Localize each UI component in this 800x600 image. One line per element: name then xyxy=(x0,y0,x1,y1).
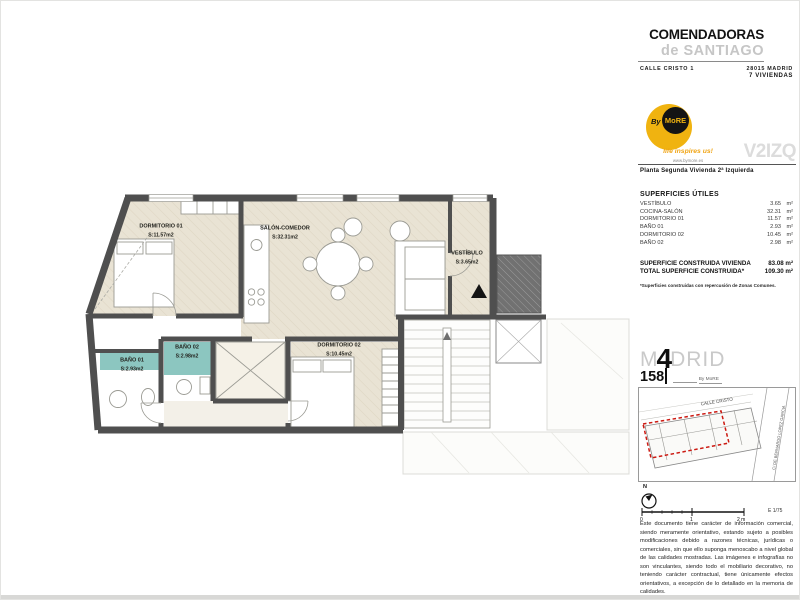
brand-tagline: life inspires us! xyxy=(638,148,738,155)
elevator xyxy=(496,320,541,363)
unit-code: V2IZQ xyxy=(744,141,796,163)
legal-disclaimer: Este documento tiene carácter de informa… xyxy=(640,520,793,597)
room-name: DORMITORIO 02 xyxy=(317,342,360,351)
room-name: DORMITORIO 01 xyxy=(139,223,182,232)
brand-by: By xyxy=(651,117,661,126)
madrid-drid: DRID xyxy=(670,349,725,370)
room-area: S:11.57m2 xyxy=(139,231,182,239)
room-area: S:2.93m2 xyxy=(120,365,144,373)
room-name: BAÑO 02 xyxy=(175,344,199,353)
table-row: BAÑO 02 2.98m² xyxy=(640,240,793,248)
room-label-dormitorio-02: DORMITORIO 02 S:10.45m2 xyxy=(317,342,360,359)
row-unit: m² xyxy=(781,232,793,240)
location-map: CALLE CRISTO C/ DE BERNARDO LOPEZ GARCIA xyxy=(638,387,796,482)
floor-plan-drawing xyxy=(1,1,638,600)
madrid158-logo: M 4 DRID 158 By MoRE xyxy=(640,342,725,384)
room-label-vestibulo: VESTÍBULO S:3.65m2 xyxy=(451,250,482,267)
room-label-bano-01: BAÑO 01 S:2.93m2 xyxy=(120,357,144,374)
row-unit: m² xyxy=(781,209,793,217)
table-row: COCINA-SALÓN 32.31m² xyxy=(640,209,793,217)
room-name: SALÓN-COMEDOR xyxy=(260,225,310,234)
built-label: TOTAL SUPERFICIE CONSTRUIDA* xyxy=(640,268,744,276)
project-subtitle: de SANTIAGO xyxy=(638,43,796,59)
madrid-four: 4 xyxy=(657,345,673,373)
table-row: DORMITORIO 02 10.45m² xyxy=(640,232,793,240)
built-row: SUPERFICIE CONSTRUIDA VIVIENDA 83.08 m² xyxy=(640,260,793,268)
room-label-salon-comedor: SALÓN-COMEDOR S:32.31m2 xyxy=(260,225,310,242)
floor-corridor xyxy=(164,401,288,427)
row-value: 32.31 xyxy=(757,209,781,217)
row-unit: m² xyxy=(781,240,793,248)
table-row: BAÑO 01 2.93m² xyxy=(640,224,793,232)
row-unit: m² xyxy=(781,201,793,209)
table-row: VESTÍBULO 3.65m² xyxy=(640,201,793,209)
row-label: COCINA-SALÓN xyxy=(640,209,683,217)
units-count: 7 VIVIENDAS xyxy=(638,73,796,79)
project-postal-city: 28015 MADRID xyxy=(747,66,793,72)
row-value: 2.93 xyxy=(757,224,781,232)
surfaces-table: SUPERFICIES ÚTILES VESTÍBULO 3.65m² COCI… xyxy=(640,191,793,247)
row-label: BAÑO 01 xyxy=(640,224,664,232)
table-row: DORMITORIO 01 11.57m² xyxy=(640,216,793,224)
built-value: 83.08 m² xyxy=(768,260,793,268)
row-unit: m² xyxy=(781,224,793,232)
divider-rule xyxy=(638,164,796,165)
project-header: COMENDADORAS de SANTIAGO CALLE CRISTO 1 … xyxy=(638,27,796,79)
street-label-right: C/ DE BERNARDO LOPEZ GARCIA xyxy=(771,405,786,470)
room-label-bano-02: BAÑO 02 S:2.98m2 xyxy=(175,344,199,361)
row-unit: m² xyxy=(781,216,793,224)
floor-plan: DORMITORIO 01 S:11.57m2 SALÓN-COMEDOR S:… xyxy=(1,1,638,600)
built-footnote: *Superficies construidas con repercusión… xyxy=(640,283,793,288)
room-area: S:32.31m2 xyxy=(260,233,310,241)
room-area: S:10.45m2 xyxy=(317,350,360,358)
brand-website: www.bymore.es xyxy=(638,158,738,163)
project-address-row: CALLE CRISTO 1 28015 MADRID xyxy=(638,62,796,72)
built-surface-block: SUPERFICIE CONSTRUIDA VIVIENDA 83.08 m² … xyxy=(640,260,793,288)
shaft xyxy=(497,255,541,313)
row-value: 11.57 xyxy=(757,216,781,224)
stairs xyxy=(404,320,490,428)
surfaces-title: SUPERFICIES ÚTILES xyxy=(640,191,793,198)
project-address: CALLE CRISTO 1 xyxy=(640,66,694,72)
row-label: DORMITORIO 01 xyxy=(640,216,684,224)
brand-logo: MoRE By xyxy=(646,104,692,150)
room-name: BAÑO 01 xyxy=(120,357,144,366)
row-label: BAÑO 02 xyxy=(640,240,664,248)
location-map-drawing: CALLE CRISTO C/ DE BERNARDO LOPEZ GARCIA xyxy=(639,388,795,481)
street-label-top: CALLE CRISTO xyxy=(700,396,733,406)
madrid-signature-line xyxy=(673,382,697,383)
scale-ratio: E 1/75 xyxy=(768,508,782,514)
info-sidebar: COMENDADORAS de SANTIAGO CALLE CRISTO 1 … xyxy=(638,1,796,600)
brand-logo-inner-circle: MoRE xyxy=(662,107,689,134)
row-value: 2.98 xyxy=(757,240,781,248)
built-label: SUPERFICIE CONSTRUIDA VIVIENDA xyxy=(640,260,751,268)
row-label: VESTÍBULO xyxy=(640,201,671,209)
row-value: 3.65 xyxy=(757,201,781,209)
room-name: VESTÍBULO xyxy=(451,250,482,259)
built-value: 109.30 m² xyxy=(765,268,793,276)
row-label: DORMITORIO 02 xyxy=(640,232,684,240)
room-area: S:3.65m2 xyxy=(451,258,482,266)
madrid-by: By MoRE xyxy=(699,377,722,384)
project-title: COMENDADORAS xyxy=(638,27,796,42)
built-row: TOTAL SUPERFICIE CONSTRUIDA* 109.30 m² xyxy=(640,268,793,276)
row-value: 10.45 xyxy=(757,232,781,240)
brochure-page: DORMITORIO 01 S:11.57m2 SALÓN-COMEDOR S:… xyxy=(0,0,800,600)
room-area: S:2.98m2 xyxy=(175,352,199,360)
room-label-dormitorio-01: DORMITORIO 01 S:11.57m2 xyxy=(139,223,182,240)
unit-floor-description: Planta Segunda Vivienda 2ª Izquierda xyxy=(640,168,754,174)
brand-name: MoRE xyxy=(665,116,686,125)
